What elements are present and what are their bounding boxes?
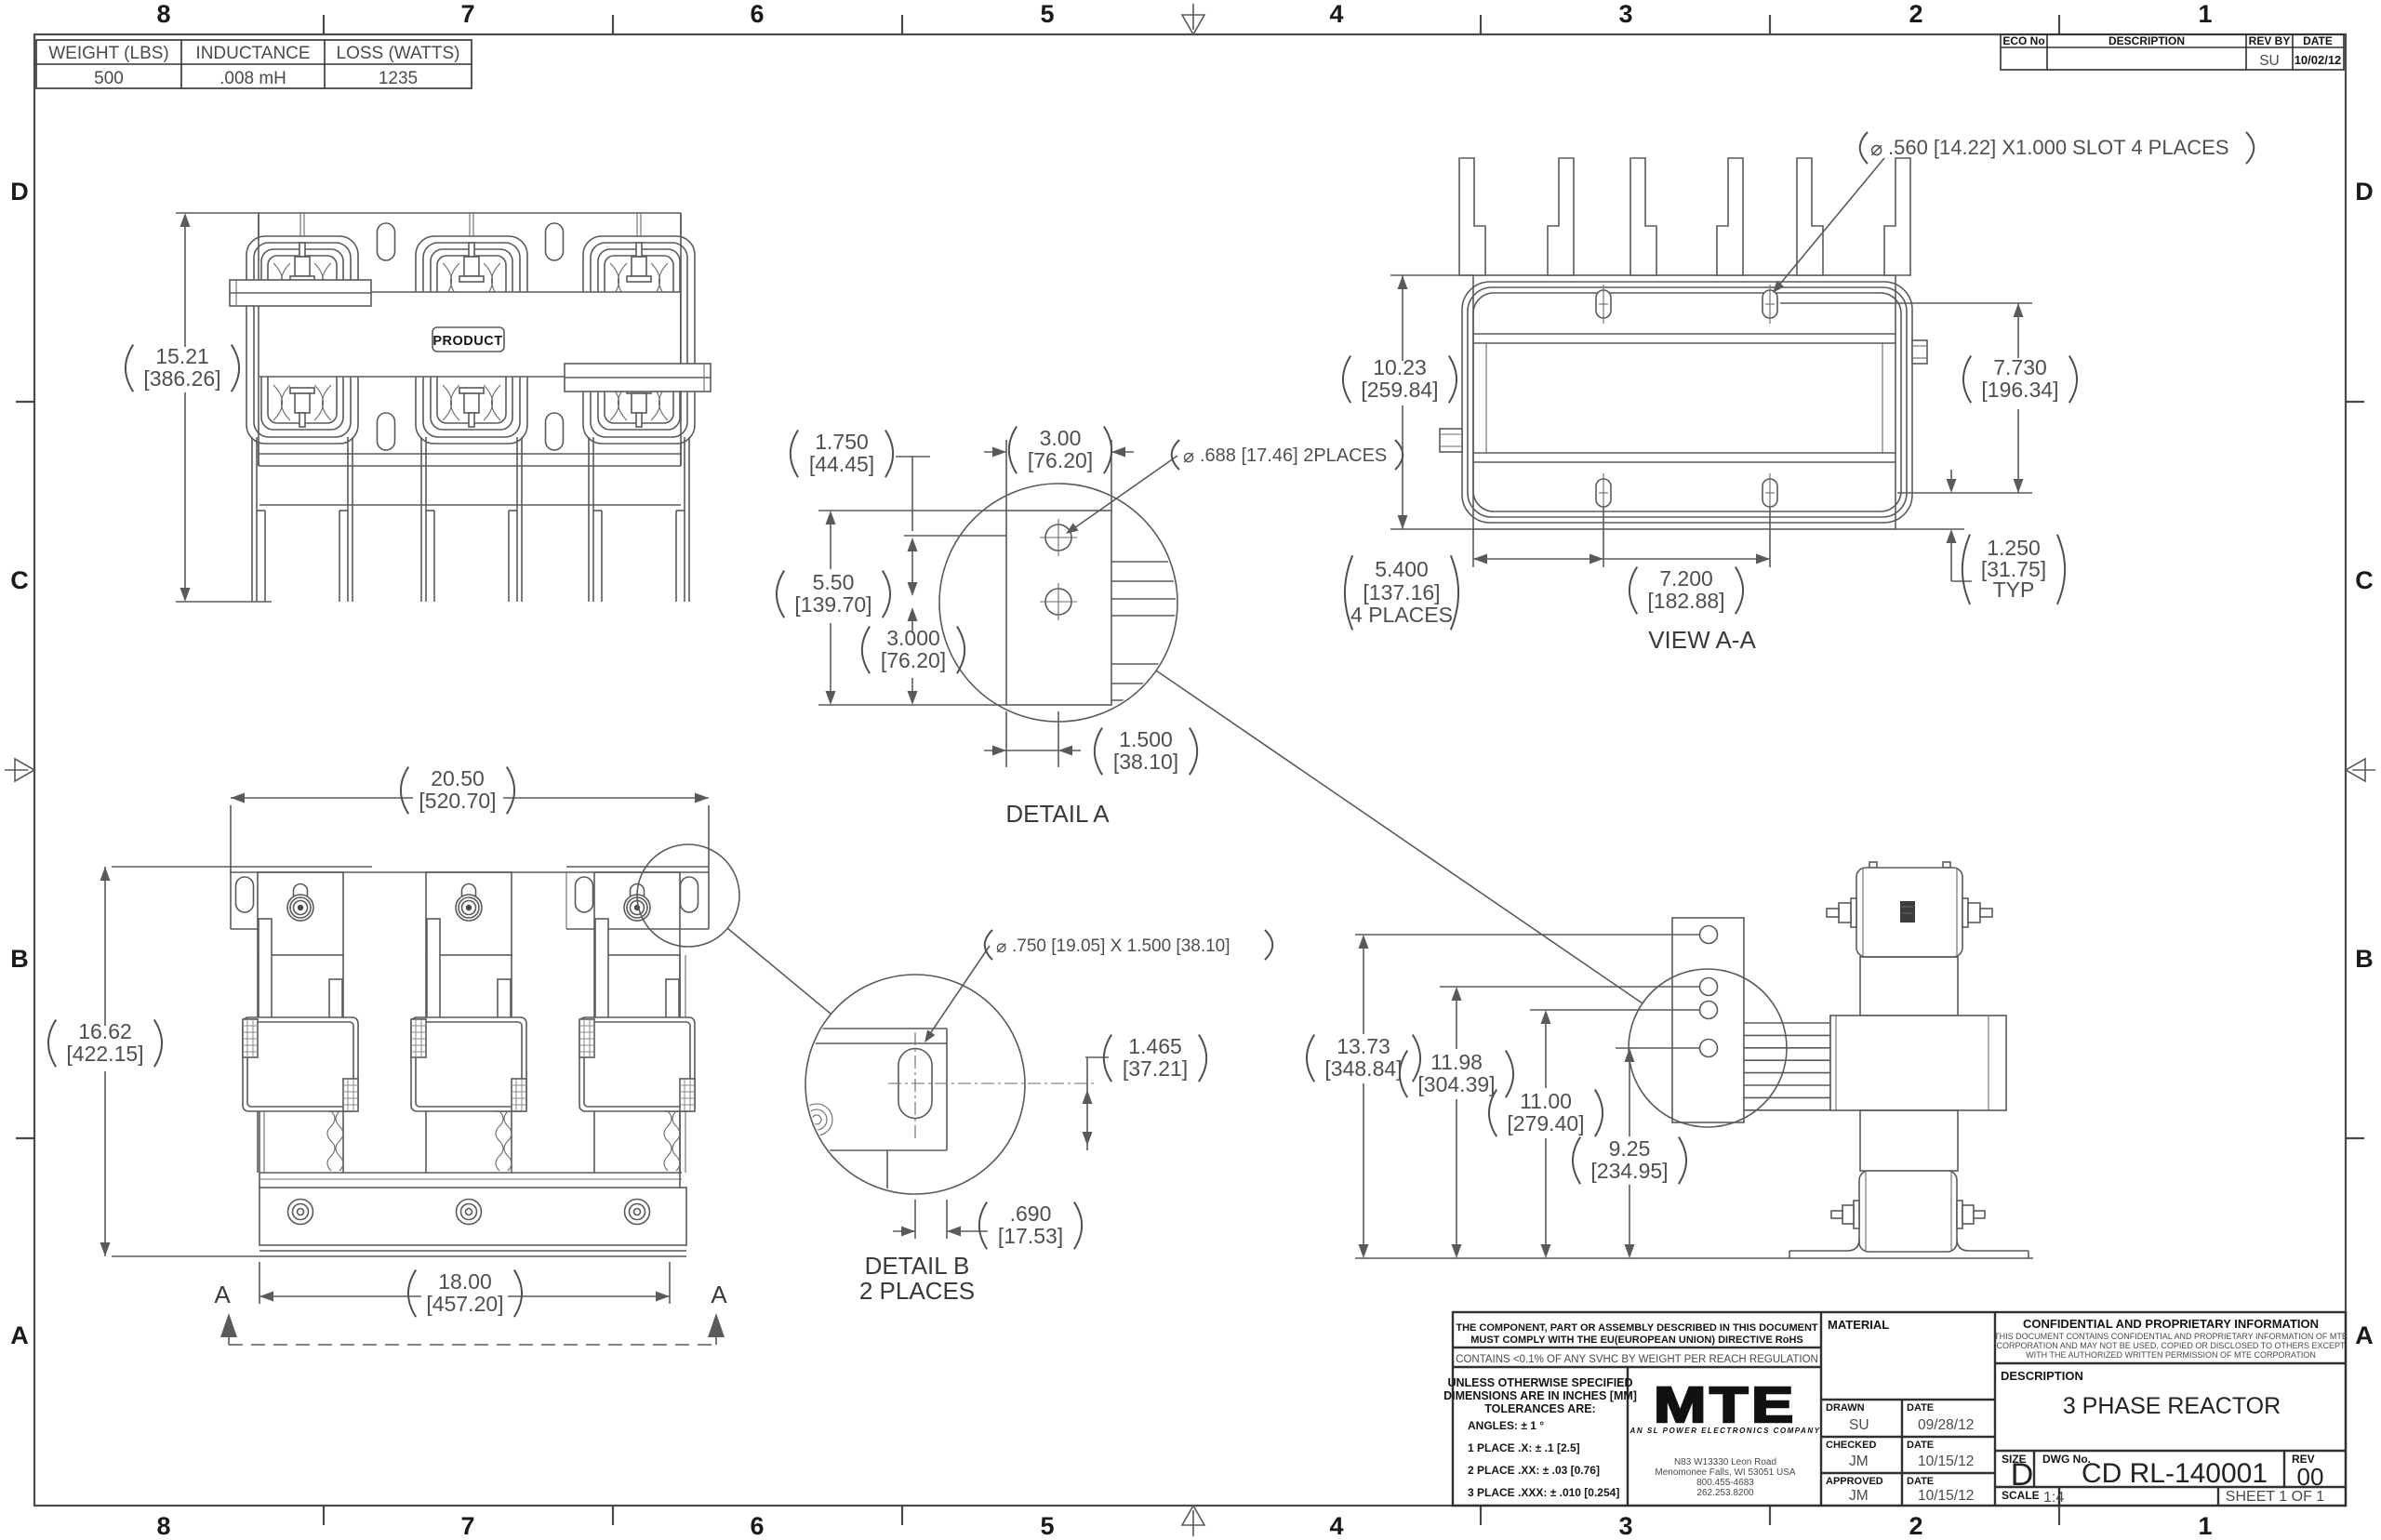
svg-text:C: C: [2355, 566, 2374, 594]
svg-text:.560 [14.22] X1.000 SLOT 4 PLA: .560 [14.22] X1.000 SLOT 4 PLACES: [1888, 136, 2229, 159]
svg-text:5.400: 5.400: [1375, 557, 1429, 581]
svg-text:JM: JM: [1849, 1454, 1869, 1469]
svg-text:2: 2: [1909, 1512, 1922, 1540]
svg-text:7: 7: [460, 0, 474, 28]
svg-text:Menomonee Falls, WI 53051 USA: Menomonee Falls, WI 53051 USA: [1655, 1467, 1796, 1478]
svg-text:DIMENSIONS ARE IN INCHES [MM]: DIMENSIONS ARE IN INCHES [MM]: [1443, 1389, 1637, 1402]
svg-text:7: 7: [460, 1512, 474, 1540]
svg-text:SU: SU: [2259, 53, 2280, 69]
svg-text:UNLESS OTHERWISE SPECIFIED: UNLESS OTHERWISE SPECIFIED: [1447, 1376, 1632, 1389]
svg-text:3: 3: [1618, 0, 1632, 28]
svg-text:ANGLES: ± 1 °: ANGLES: ± 1 °: [1468, 1419, 1544, 1432]
svg-text:1: 1: [2198, 1512, 2212, 1540]
svg-text:262.253.8200: 262.253.8200: [1696, 1488, 1754, 1498]
svg-text:B: B: [2355, 945, 2374, 973]
svg-text:15.21: 15.21: [155, 344, 209, 368]
svg-text:DESCRIPTION: DESCRIPTION: [2001, 1369, 2083, 1383]
svg-text:[304.39]: [304.39]: [1417, 1072, 1495, 1096]
svg-text:[17.53]: [17.53]: [998, 1224, 1063, 1248]
svg-text:4: 4: [1329, 1512, 1343, 1540]
svg-text:18.00: 18.00: [438, 1269, 492, 1294]
svg-text:A: A: [214, 1281, 231, 1308]
svg-text:10/15/12: 10/15/12: [1918, 1488, 1974, 1504]
svg-text:1:4: 1:4: [2043, 1490, 2064, 1506]
svg-text:VIEW A-A: VIEW A-A: [1648, 626, 1756, 654]
svg-text:1.500: 1.500: [1119, 727, 1173, 751]
svg-text:.008 mH: .008 mH: [219, 69, 286, 88]
svg-text:DRAWN: DRAWN: [1826, 1402, 1865, 1414]
svg-text:CD RL-140001: CD RL-140001: [2082, 1458, 2268, 1489]
svg-text:5: 5: [1040, 0, 1054, 28]
svg-text:AN SL POWER ELECTRONICS COMPAN: AN SL POWER ELECTRONICS COMPANY: [1629, 1427, 1821, 1435]
svg-text:PRODUCT: PRODUCT: [432, 334, 502, 349]
svg-text:D: D: [10, 178, 29, 206]
svg-text:4: 4: [1329, 0, 1343, 28]
svg-text:[76.20]: [76.20]: [1028, 448, 1093, 472]
svg-text:⌀: ⌀: [1183, 446, 1194, 467]
svg-text:5: 5: [1040, 1512, 1054, 1540]
svg-text:[279.40]: [279.40]: [1507, 1111, 1584, 1135]
svg-text:DETAIL A: DETAIL A: [1005, 800, 1110, 828]
svg-text:⌀: ⌀: [996, 937, 1006, 957]
svg-text:13.73: 13.73: [1337, 1034, 1390, 1058]
svg-text:ECO No: ECO No: [2002, 34, 2044, 47]
svg-text:1235: 1235: [379, 69, 418, 88]
svg-text:SHEET 1 OF 1: SHEET 1 OF 1: [2226, 1489, 2325, 1505]
svg-text:16.62: 16.62: [78, 1019, 132, 1043]
svg-text:[76.20]: [76.20]: [881, 648, 946, 672]
svg-text:WEIGHT (LBS): WEIGHT (LBS): [48, 44, 169, 63]
svg-text:DATE: DATE: [1907, 1440, 1934, 1451]
svg-text:3: 3: [1618, 1512, 1632, 1540]
svg-text:10/02/12: 10/02/12: [2295, 53, 2342, 67]
svg-text:1.750: 1.750: [815, 430, 869, 454]
svg-text:3.000: 3.000: [886, 626, 940, 650]
svg-text:1 PLACE .X: ± .1 [2.5]: 1 PLACE .X: ± .1 [2.5]: [1468, 1441, 1580, 1454]
svg-text:TYP: TYP: [1993, 577, 2035, 602]
svg-text:9.25: 9.25: [1609, 1136, 1651, 1161]
svg-text:10.23: 10.23: [1373, 355, 1427, 379]
svg-text:SU: SU: [1849, 1417, 1869, 1433]
svg-text:3 PHASE REACTOR: 3 PHASE REACTOR: [2063, 1393, 2281, 1419]
svg-text:[259.84]: [259.84]: [1361, 378, 1438, 402]
svg-text:[422.15]: [422.15]: [66, 1042, 143, 1066]
svg-text:REV BY: REV BY: [2249, 34, 2291, 47]
svg-text:11.98: 11.98: [1430, 1050, 1483, 1074]
svg-text:1.465: 1.465: [1128, 1034, 1182, 1058]
svg-text:[520.70]: [520.70]: [419, 789, 496, 813]
svg-text:MATERIAL: MATERIAL: [1828, 1318, 1889, 1332]
svg-text:[386.26]: [386.26]: [143, 366, 220, 391]
svg-text:CONTAINS <0.1% OF ANY SVHC BY: CONTAINS <0.1% OF ANY SVHC BY WEIGHT PER…: [1456, 1354, 1818, 1365]
svg-text:MTE: MTE: [1654, 1376, 1797, 1432]
svg-text:[37.21]: [37.21]: [1123, 1056, 1188, 1081]
svg-text:D: D: [2355, 178, 2374, 206]
svg-text:6: 6: [750, 0, 764, 28]
svg-text:5.50: 5.50: [813, 570, 855, 594]
svg-text:[137.16]: [137.16]: [1363, 580, 1440, 604]
svg-text:A: A: [2355, 1321, 2374, 1349]
svg-text:DATE: DATE: [1907, 1402, 1934, 1414]
svg-text:INDUCTANCE: INDUCTANCE: [195, 44, 310, 63]
svg-text:JM: JM: [1849, 1488, 1869, 1504]
svg-text:6: 6: [750, 1512, 764, 1540]
svg-text:A: A: [711, 1281, 727, 1308]
svg-text:SCALE: SCALE: [2002, 1489, 2040, 1502]
svg-text:4 PLACES: 4 PLACES: [1350, 603, 1453, 627]
svg-text:3.00: 3.00: [1040, 426, 1082, 450]
svg-text:2: 2: [1909, 0, 1922, 28]
svg-text:3 PLACE .XXX: ± .010 [0.254]: 3 PLACE .XXX: ± .010 [0.254]: [1468, 1486, 1619, 1499]
svg-text:WITH THE AUTHORIZED WRITTEN PE: WITH THE AUTHORIZED WRITTEN PERMISSION O…: [2026, 1350, 2316, 1360]
svg-text:10/15/12: 10/15/12: [1918, 1454, 1974, 1469]
svg-text:DETAIL B: DETAIL B: [865, 1252, 970, 1280]
svg-text:THE COMPONENT, PART OR ASSEMBL: THE COMPONENT, PART OR ASSEMBLY DESCRIBE…: [1456, 1322, 1818, 1334]
svg-text:500: 500: [94, 69, 124, 88]
svg-text:[196.34]: [196.34]: [1981, 378, 2058, 402]
svg-text:CORPORATION AND MAY NOT BE USE: CORPORATION AND MAY NOT BE USED, COPIED …: [1996, 1341, 2346, 1350]
svg-text:.750 [19.05] X 1.500 [38.10]: .750 [19.05] X 1.500 [38.10]: [1012, 936, 1230, 956]
svg-text:800.455-4683: 800.455-4683: [1696, 1478, 1754, 1488]
svg-text:2 PLACE .XX: ± .03 [0.76]: 2 PLACE .XX: ± .03 [0.76]: [1468, 1464, 1600, 1477]
svg-text:[234.95]: [234.95]: [1590, 1159, 1668, 1183]
svg-text:TOLERANCES ARE:: TOLERANCES ARE:: [1484, 1402, 1595, 1415]
svg-text:CONFIDENTIAL AND PROPRIETARY I: CONFIDENTIAL AND PROPRIETARY INFORMATION: [2023, 1317, 2319, 1331]
svg-text:2 PLACES: 2 PLACES: [859, 1277, 975, 1305]
svg-text:[38.10]: [38.10]: [1113, 750, 1178, 774]
svg-text:C: C: [10, 566, 29, 594]
svg-text:[44.45]: [44.45]: [809, 452, 874, 476]
svg-text:N83 W13330 Leon Road: N83 W13330 Leon Road: [1674, 1457, 1776, 1467]
svg-text:DATE: DATE: [2303, 34, 2333, 47]
svg-text:[457.20]: [457.20]: [426, 1292, 503, 1316]
svg-text:MUST COMPLY WITH THE EU(EUROPE: MUST COMPLY WITH THE EU(EUROPEAN UNION) …: [1470, 1334, 1803, 1346]
svg-text:20.50: 20.50: [431, 766, 485, 790]
svg-text:7.730: 7.730: [1993, 355, 2047, 379]
svg-text:APPROVED: APPROVED: [1826, 1476, 1883, 1487]
svg-text:8: 8: [156, 0, 170, 28]
svg-text:LOSS (WATTS): LOSS (WATTS): [337, 44, 460, 63]
svg-text:[139.70]: [139.70]: [794, 592, 871, 617]
svg-text:.690: .690: [1010, 1201, 1052, 1226]
svg-text:.688 [17.46] 2PLACES: .688 [17.46] 2PLACES: [1200, 445, 1387, 466]
svg-text:8: 8: [156, 1512, 170, 1540]
svg-text:09/28/12: 09/28/12: [1918, 1417, 1974, 1433]
svg-text:1: 1: [2198, 0, 2212, 28]
svg-text:⌀: ⌀: [1870, 137, 1882, 160]
svg-text:DESCRIPTION: DESCRIPTION: [2108, 34, 2185, 47]
svg-text:A: A: [10, 1321, 29, 1349]
svg-text:THIS DOCUMENT CONTAINS CONFIDE: THIS DOCUMENT CONTAINS CONFIDENTIAL AND …: [1994, 1332, 2348, 1341]
svg-text:11.00: 11.00: [1520, 1089, 1572, 1113]
svg-text:[348.84]: [348.84]: [1324, 1056, 1402, 1081]
svg-text:B: B: [10, 945, 29, 973]
svg-text:[182.88]: [182.88]: [1647, 589, 1724, 613]
svg-text:7.200: 7.200: [1659, 566, 1713, 591]
svg-text:DATE: DATE: [1907, 1476, 1934, 1487]
svg-text:CHECKED: CHECKED: [1826, 1440, 1876, 1451]
